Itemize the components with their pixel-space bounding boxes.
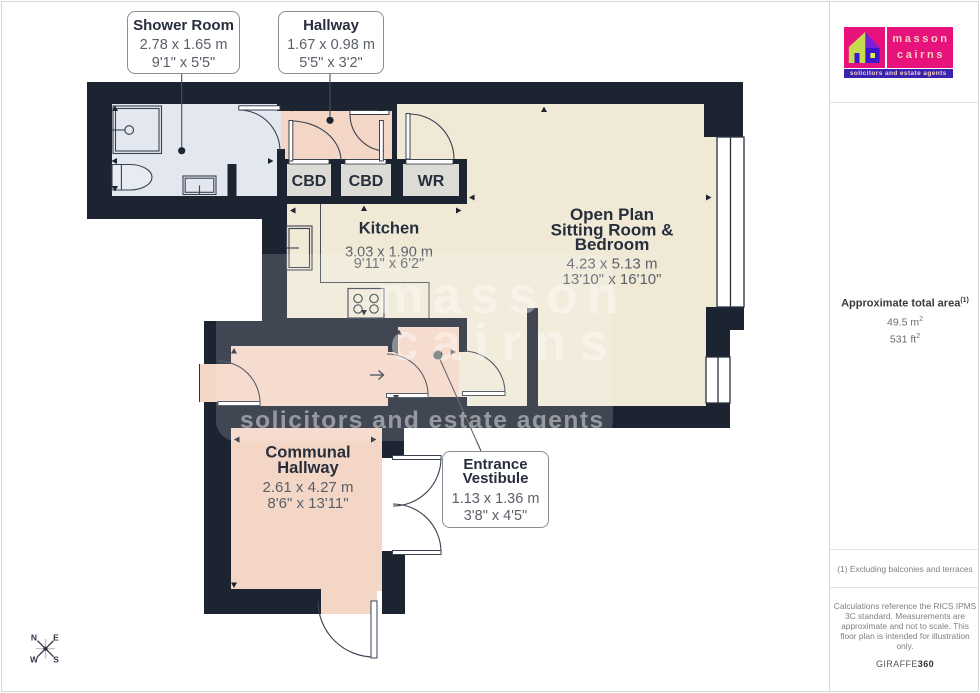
svg-text:CBD: CBD bbox=[349, 173, 384, 190]
svg-text:8'6" x 13'11": 8'6" x 13'11" bbox=[267, 495, 348, 512]
svg-text:Hallway: Hallway bbox=[277, 459, 339, 477]
svg-text:CBD: CBD bbox=[292, 173, 327, 190]
svg-text:N: N bbox=[31, 632, 37, 642]
svg-text:Bedroom: Bedroom bbox=[575, 235, 650, 254]
svg-text:2.61 x 4.27 m: 2.61 x 4.27 m bbox=[263, 479, 354, 496]
svg-text:WR: WR bbox=[418, 173, 445, 190]
svg-text:S: S bbox=[53, 655, 59, 665]
svg-text:Kitchen: Kitchen bbox=[359, 220, 420, 238]
svg-text:W: W bbox=[30, 655, 39, 665]
svg-text:E: E bbox=[53, 632, 59, 642]
